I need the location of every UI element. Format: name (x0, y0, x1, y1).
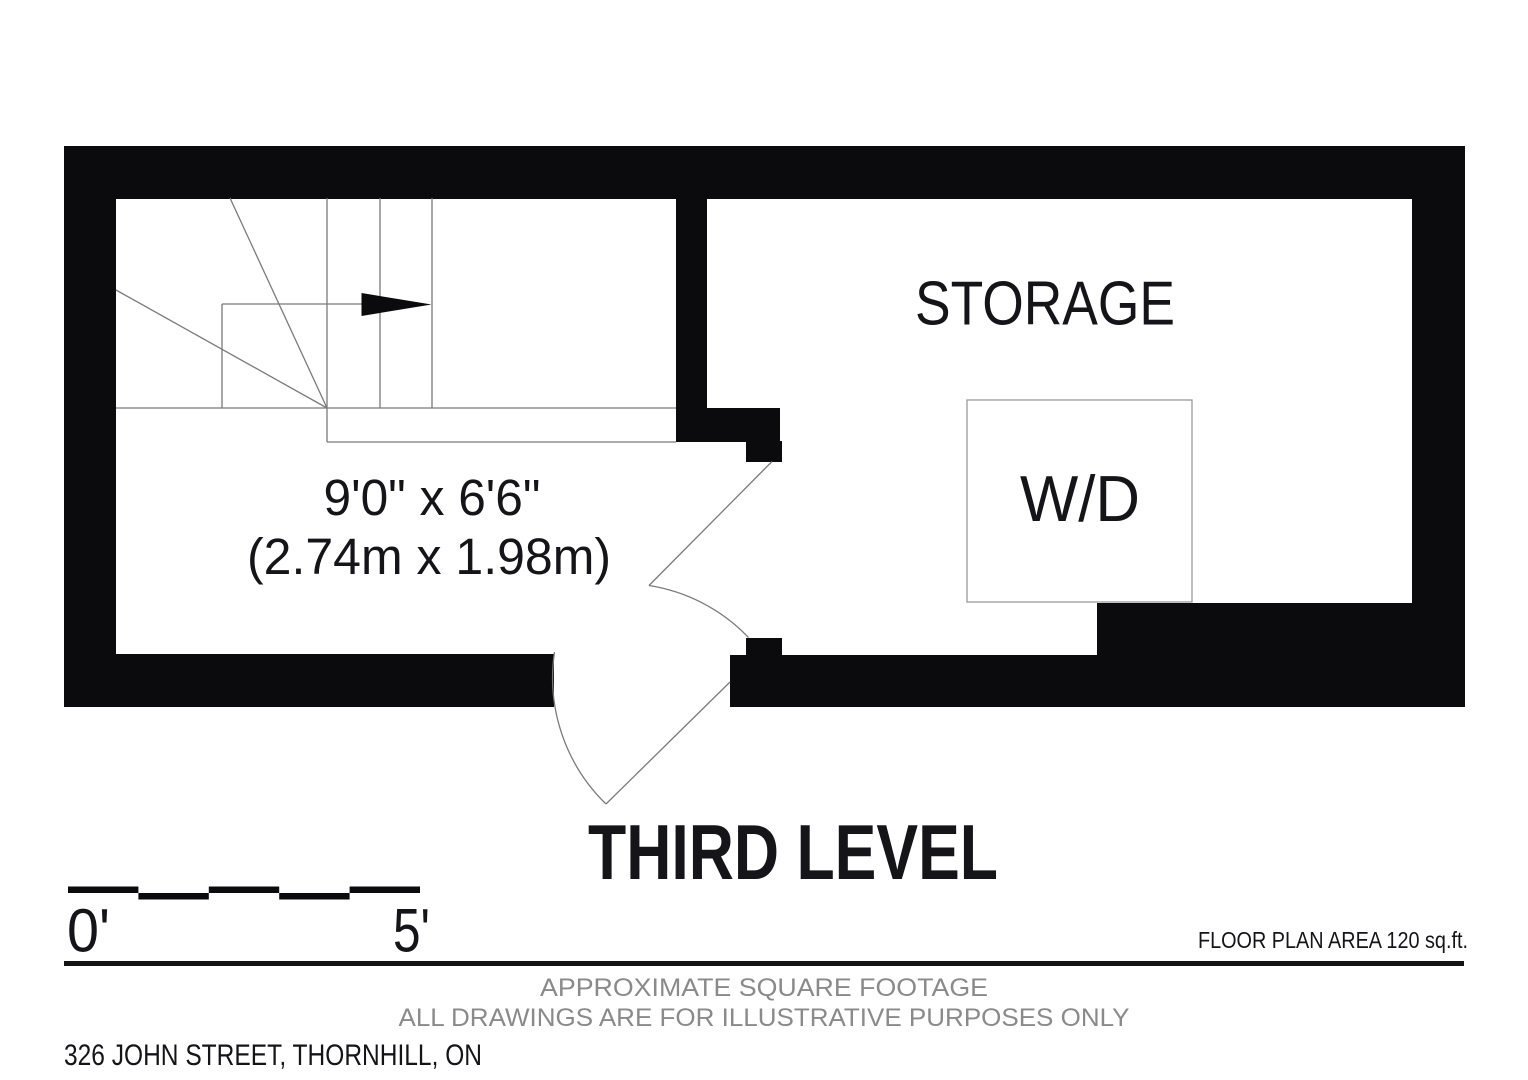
svg-text:0': 0' (67, 897, 110, 965)
svg-text:THIRD LEVEL: THIRD LEVEL (588, 808, 998, 896)
svg-text:(2.74m x 1.98m): (2.74m x 1.98m) (247, 528, 611, 585)
svg-text:5': 5' (393, 897, 430, 965)
svg-text:326 JOHN STREET, THORNHILL, ON: 326 JOHN STREET, THORNHILL, ON (64, 1039, 482, 1072)
svg-text:FLOOR PLAN AREA 120 sq.ft.: FLOOR PLAN AREA 120 sq.ft. (1198, 927, 1468, 953)
svg-text:APPROXIMATE SQUARE FOOTAGE: APPROXIMATE SQUARE FOOTAGE (540, 974, 988, 1002)
svg-text:ALL DRAWINGS ARE FOR ILLUSTRAT: ALL DRAWINGS ARE FOR ILLUSTRATIVE PURPOS… (399, 1004, 1130, 1032)
svg-text:9'0" x 6'6": 9'0" x 6'6" (324, 469, 541, 526)
svg-text:STORAGE: STORAGE (915, 269, 1175, 339)
svg-text:W/D: W/D (1020, 462, 1140, 535)
